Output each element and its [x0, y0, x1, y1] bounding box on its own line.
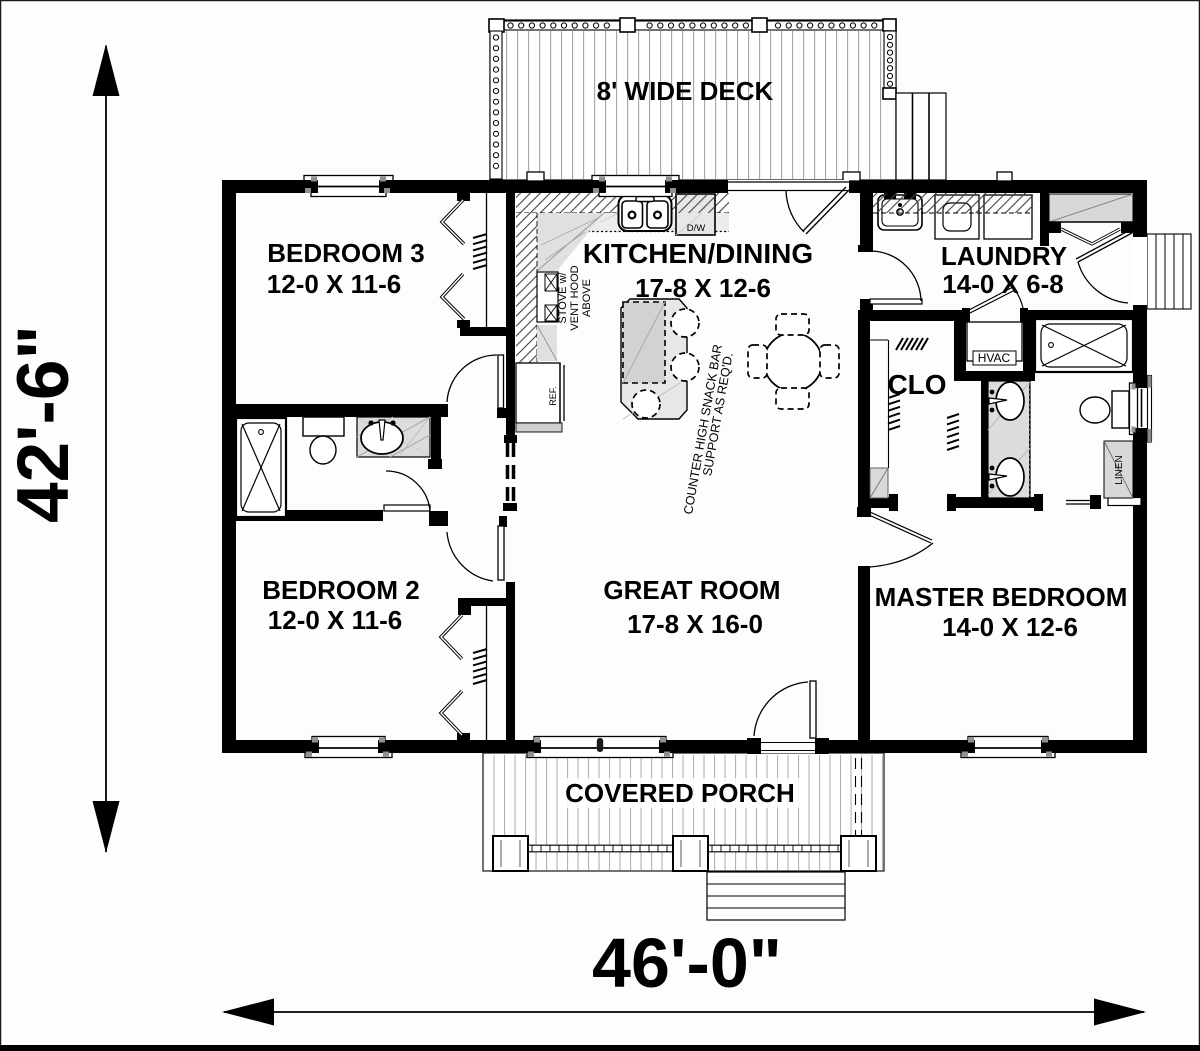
svg-text:D/W: D/W: [687, 223, 706, 234]
svg-text:14-0 X 6-8: 14-0 X 6-8: [942, 269, 1063, 299]
svg-text:HVAC: HVAC: [978, 351, 1011, 365]
svg-text:MASTER BEDROOM: MASTER BEDROOM: [875, 582, 1128, 612]
svg-text:ABOVE: ABOVE: [581, 279, 593, 317]
svg-text:GREAT ROOM: GREAT ROOM: [603, 575, 780, 605]
svg-text:BEDROOM 2: BEDROOM 2: [262, 575, 419, 605]
svg-text:46'-0": 46'-0": [592, 924, 782, 1002]
svg-text:17-8 X 16-0: 17-8 X 16-0: [627, 609, 763, 639]
svg-text:LINEN: LINEN: [1114, 455, 1125, 484]
svg-text:STOVE w/: STOVE w/: [557, 271, 569, 323]
svg-text:42'-6": 42'-6": [3, 325, 84, 523]
svg-text:REF.: REF.: [548, 386, 558, 406]
svg-text:VENT HOOD: VENT HOOD: [569, 265, 581, 330]
svg-text:12-0 X 11-6: 12-0 X 11-6: [267, 269, 401, 299]
svg-text:14-0 X 12-6: 14-0 X 12-6: [942, 612, 1078, 642]
svg-text:LAUNDRY: LAUNDRY: [941, 241, 1067, 271]
svg-text:KITCHEN/DINING: KITCHEN/DINING: [583, 238, 813, 269]
svg-text:12-0 X 11-6: 12-0 X 11-6: [268, 605, 402, 635]
svg-text:8' WIDE DECK: 8' WIDE DECK: [597, 76, 774, 106]
svg-text:COVERED PORCH: COVERED PORCH: [565, 778, 795, 808]
svg-text:BEDROOM 3: BEDROOM 3: [267, 238, 424, 268]
